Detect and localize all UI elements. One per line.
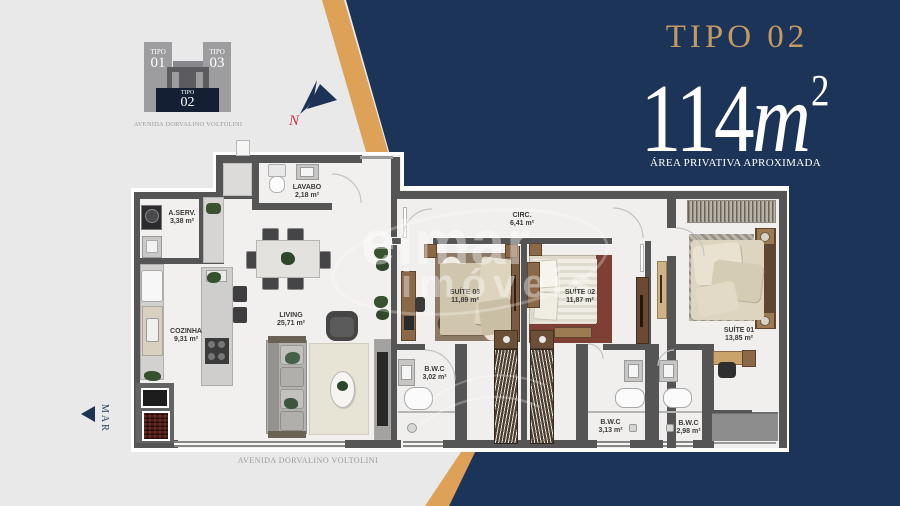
svg-text:N: N	[288, 113, 300, 129]
svg-text:MAR: MAR	[99, 404, 110, 433]
